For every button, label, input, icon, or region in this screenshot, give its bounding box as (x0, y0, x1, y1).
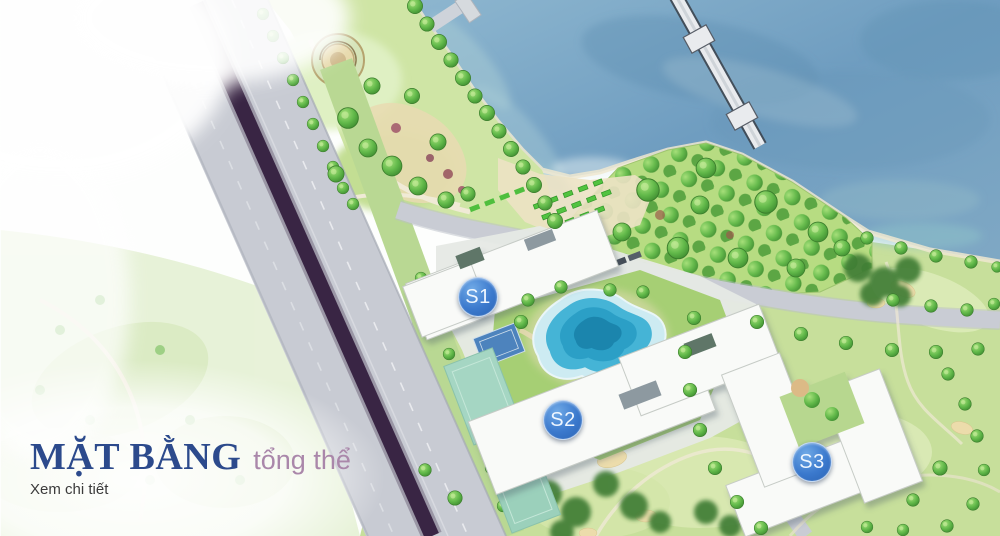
page-title: MẶT BẰNG (30, 438, 241, 478)
building-marker-s2[interactable]: S2 (543, 400, 583, 440)
master-plan-page: S1 S2 S3 MẶT BẰNG tổng thể Xem chi tiết (0, 0, 1000, 536)
view-details-link[interactable]: Xem chi tiết (30, 481, 351, 498)
page-title-line: MẶT BẰNG tổng thể (30, 438, 351, 478)
building-marker-s3[interactable]: S3 (792, 442, 832, 482)
title-block: MẶT BẰNG tổng thể Xem chi tiết (30, 438, 351, 498)
page-subtitle: tổng thể (253, 445, 351, 476)
building-marker-s1[interactable]: S1 (458, 277, 498, 317)
